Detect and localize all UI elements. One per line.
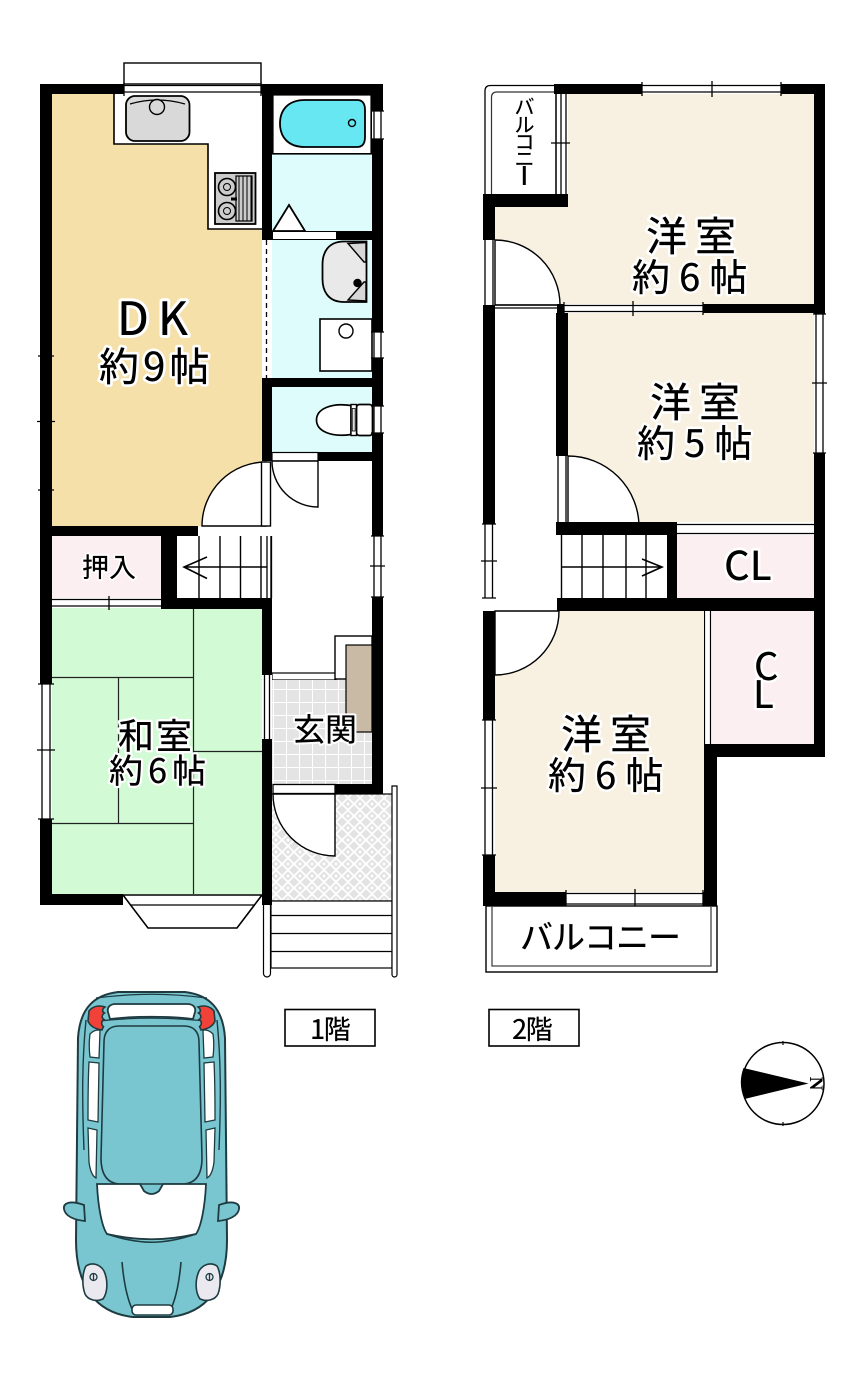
svg-text:N: N [805, 1077, 826, 1091]
